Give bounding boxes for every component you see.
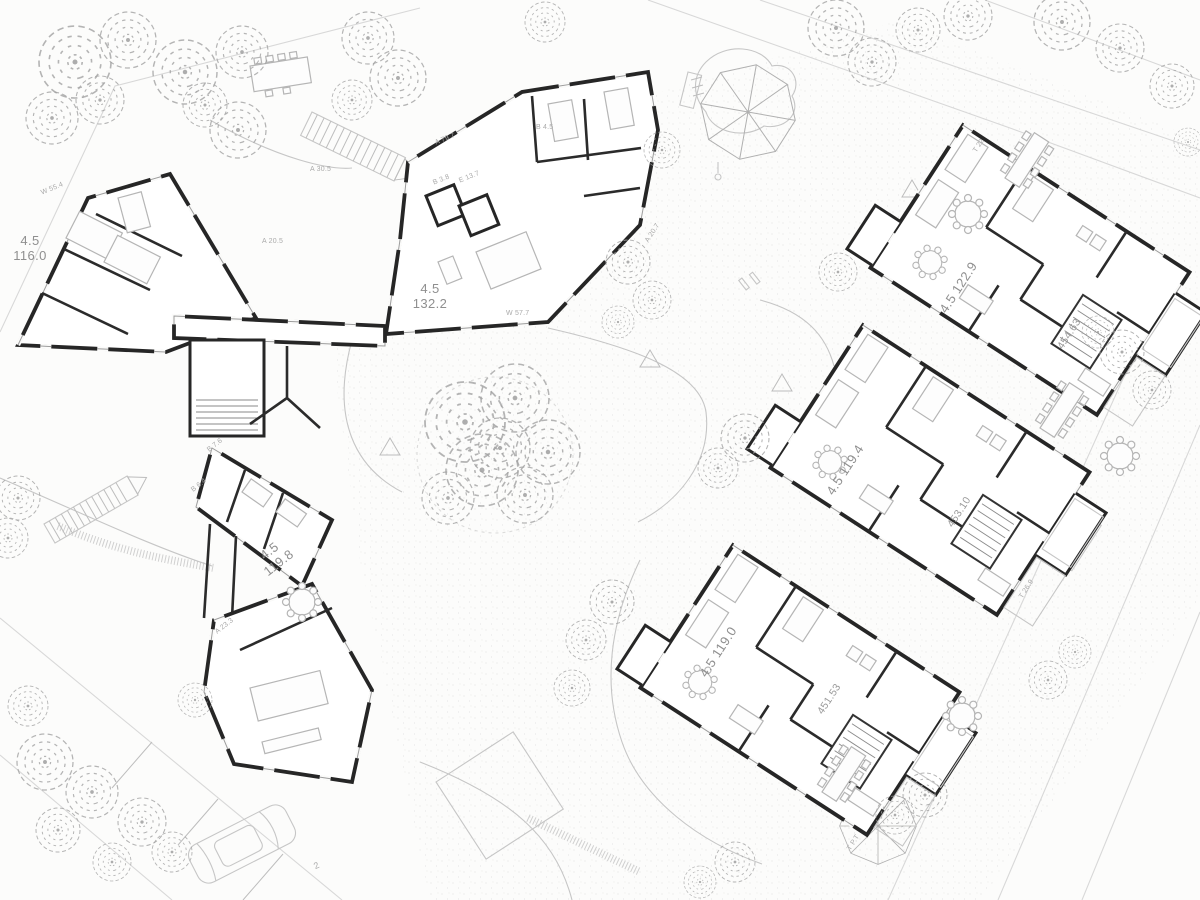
- car: [184, 801, 299, 887]
- room-label: B 4.5: [536, 124, 553, 131]
- area-label-hall: 4.5 132.2: [398, 282, 462, 312]
- site-plan: 4.5 116.0 4.5 132.2 4.5 119.8 4.5 122.9 …: [0, 0, 1200, 900]
- pergola-table: [249, 50, 313, 99]
- room-label: A 30.5: [310, 166, 331, 173]
- site-plan-drawing: [0, 0, 1200, 900]
- round-table: [283, 583, 322, 622]
- area-label-west: 4.5 116.0: [4, 234, 56, 264]
- room-label: A 20.5: [262, 238, 283, 245]
- room-label: W 57.7: [506, 310, 529, 317]
- stairs-ramp-top: [301, 112, 422, 189]
- stairs-ramp-left: [44, 468, 152, 543]
